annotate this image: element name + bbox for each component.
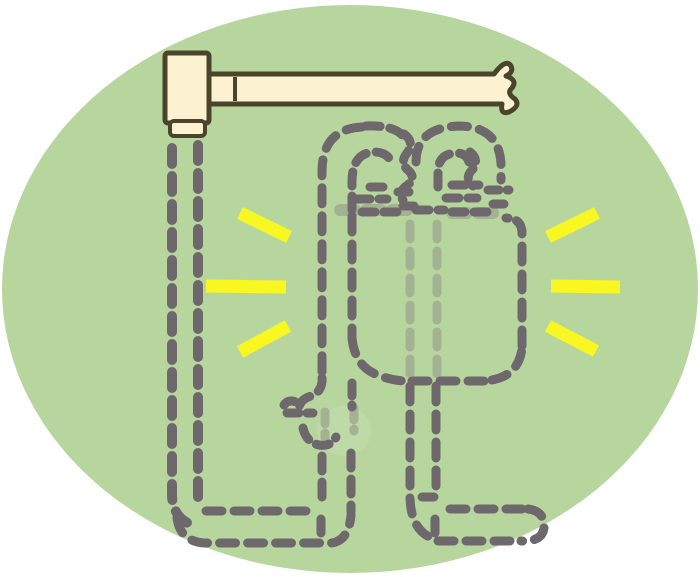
sparkle-left-middle — [206, 286, 286, 287]
sparkle-right-middle — [551, 286, 620, 287]
mallet-head — [165, 53, 209, 123]
mallet-cap — [170, 121, 205, 136]
illustration-canvas — [0, 0, 700, 577]
illustration-stage — [0, 0, 700, 577]
